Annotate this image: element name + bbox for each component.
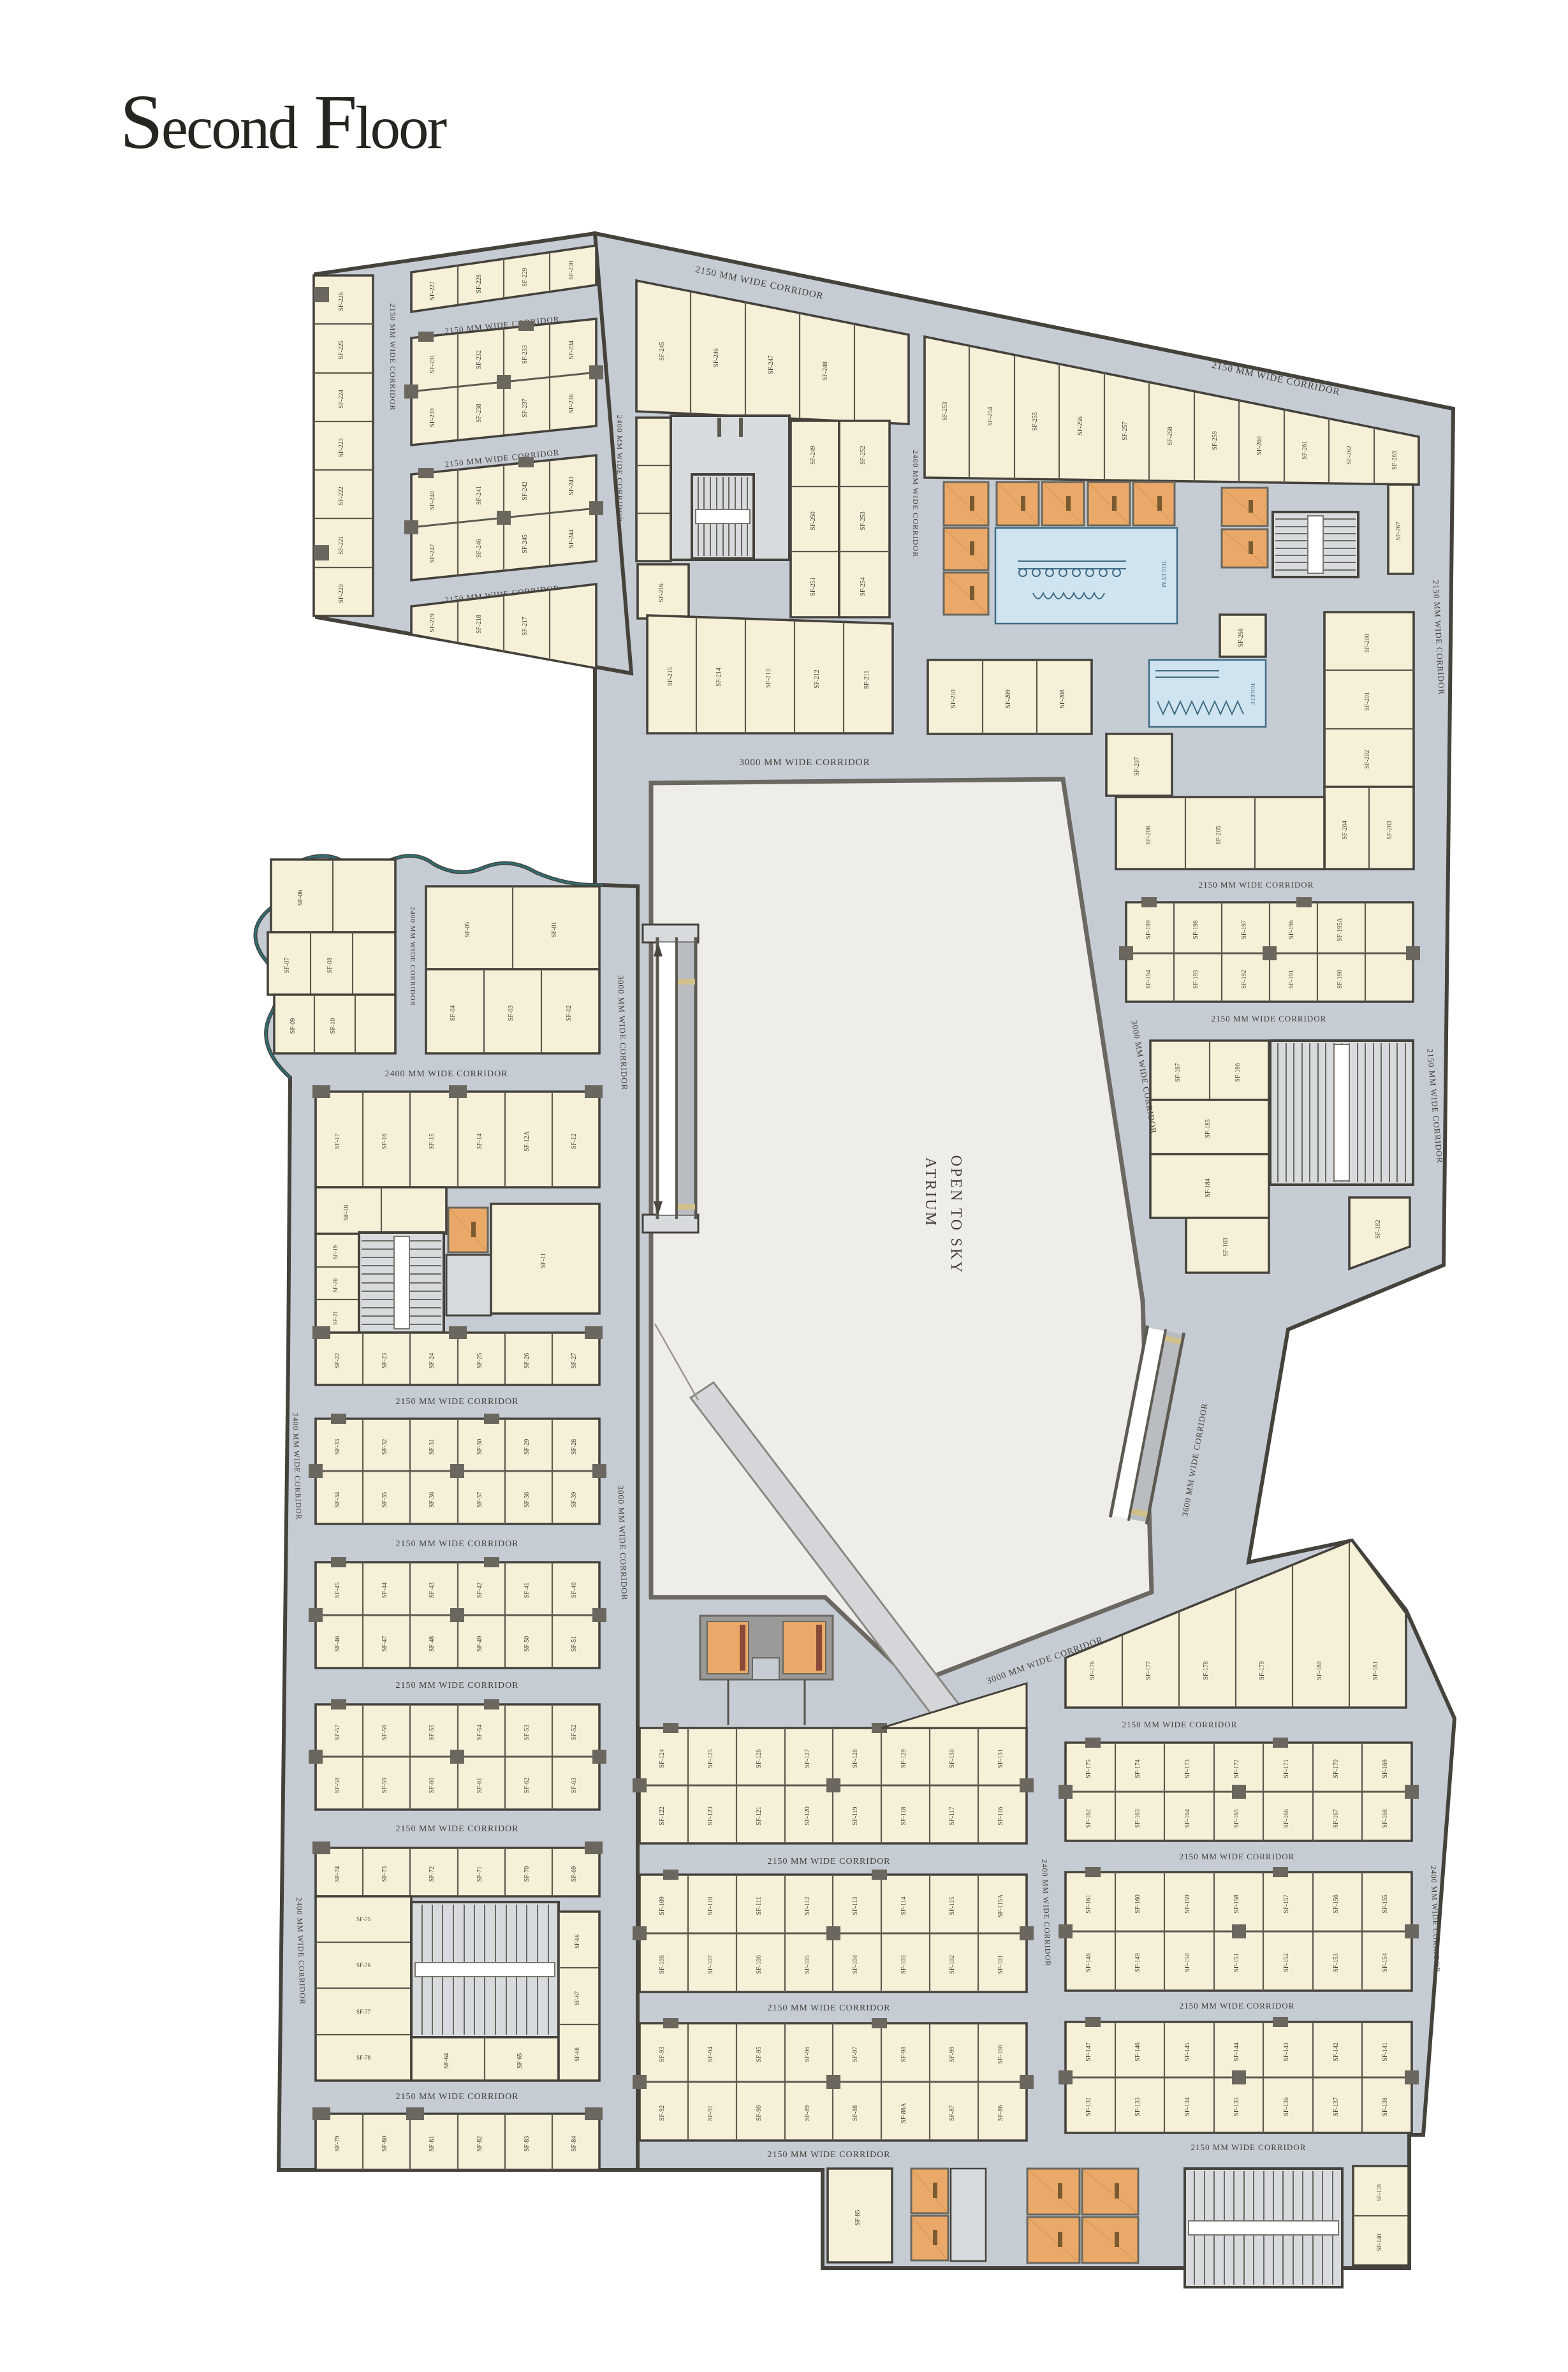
svg-text:SF-206: SF-206 <box>1145 826 1152 844</box>
svg-text:SF-192: SF-192 <box>1241 970 1248 988</box>
svg-text:SF-222: SF-222 <box>338 487 345 505</box>
svg-text:SF-101: SF-101 <box>997 1955 1004 1973</box>
svg-text:SF-55: SF-55 <box>429 1725 436 1740</box>
svg-text:SF-114: SF-114 <box>900 1896 907 1915</box>
svg-text:SF-70: SF-70 <box>524 1866 531 1882</box>
svg-text:SF-247: SF-247 <box>429 544 436 562</box>
svg-text:SF-169: SF-169 <box>1382 1759 1389 1778</box>
svg-text:SF-158: SF-158 <box>1233 1894 1240 1913</box>
svg-text:SF-168: SF-168 <box>1382 1809 1389 1827</box>
svg-text:SF-105: SF-105 <box>804 1955 811 1973</box>
svg-text:SF-140: SF-140 <box>1376 2234 1382 2251</box>
svg-text:SF-150: SF-150 <box>1184 1953 1191 1972</box>
svg-text:ATRIUM: ATRIUM <box>922 1157 939 1227</box>
svg-text:SF-245: SF-245 <box>659 342 666 360</box>
svg-text:SF-239: SF-239 <box>429 408 436 427</box>
svg-text:SF-35: SF-35 <box>381 1492 388 1507</box>
svg-text:SF-68: SF-68 <box>574 2047 580 2062</box>
svg-text:SF-211: SF-211 <box>863 670 870 689</box>
svg-text:SF-152: SF-152 <box>1283 1953 1290 1972</box>
svg-text:SF-03: SF-03 <box>508 1006 515 1021</box>
svg-text:SF-100: SF-100 <box>997 2045 1004 2063</box>
svg-text:TOILET F: TOILET F <box>1250 683 1256 705</box>
svg-text:2150 MM WIDE CORRIDOR: 2150 MM WIDE CORRIDOR <box>395 2092 518 2102</box>
svg-text:2150 MM WIDE CORRIDOR: 2150 MM WIDE CORRIDOR <box>767 2150 890 2160</box>
svg-text:SF-159: SF-159 <box>1184 1894 1191 1913</box>
svg-text:SF-204: SF-204 <box>1342 821 1349 839</box>
svg-text:SF-15: SF-15 <box>429 1134 436 1149</box>
svg-text:SF-146: SF-146 <box>1134 2042 1141 2061</box>
svg-text:SF-129: SF-129 <box>900 1749 907 1768</box>
svg-text:SF-181: SF-181 <box>1372 1661 1379 1680</box>
svg-text:SF-08: SF-08 <box>326 958 333 973</box>
svg-text:SF-193: SF-193 <box>1192 970 1199 988</box>
svg-text:SF-132: SF-132 <box>1085 2097 1092 2116</box>
svg-text:SF-87: SF-87 <box>949 2105 956 2121</box>
svg-text:SF-251: SF-251 <box>810 577 817 596</box>
svg-text:SF-115A: SF-115A <box>997 1894 1004 1917</box>
svg-text:SF-213: SF-213 <box>765 669 772 687</box>
svg-text:SF-197: SF-197 <box>1241 920 1248 939</box>
svg-text:SF-51: SF-51 <box>571 1636 578 1651</box>
svg-text:SF-246: SF-246 <box>713 348 720 367</box>
svg-text:SF-64: SF-64 <box>443 2053 450 2068</box>
svg-text:SF-40: SF-40 <box>571 1583 578 1598</box>
svg-text:SF-165: SF-165 <box>1233 1809 1240 1827</box>
svg-text:SF-137: SF-137 <box>1333 2097 1340 2116</box>
svg-text:SF-117: SF-117 <box>949 1806 956 1825</box>
svg-text:SF-124: SF-124 <box>659 1749 666 1768</box>
svg-text:SF-56: SF-56 <box>381 1725 388 1740</box>
svg-text:SF-58: SF-58 <box>334 1778 341 1793</box>
svg-text:SF-185: SF-185 <box>1205 1119 1212 1138</box>
svg-text:SF-219: SF-219 <box>429 613 436 632</box>
svg-text:SF-69: SF-69 <box>571 1866 578 1882</box>
svg-text:SF-125: SF-125 <box>707 1749 714 1768</box>
svg-text:SF-151: SF-151 <box>1233 1953 1240 1972</box>
svg-text:SF-212: SF-212 <box>814 670 821 688</box>
svg-text:2150 MM WIDE CORRIDOR: 2150 MM WIDE CORRIDOR <box>388 304 397 411</box>
svg-text:SF-231: SF-231 <box>429 355 436 373</box>
svg-text:2150 MM WIDE CORRIDOR: 2150 MM WIDE CORRIDOR <box>1199 880 1314 890</box>
svg-text:SF-135: SF-135 <box>1233 2097 1240 2116</box>
svg-text:SF-59: SF-59 <box>381 1778 388 1793</box>
svg-text:SF-33: SF-33 <box>334 1439 341 1454</box>
svg-text:SF-154: SF-154 <box>1382 1953 1389 1972</box>
svg-text:SF-172: SF-172 <box>1233 1759 1240 1778</box>
svg-text:SF-260: SF-260 <box>1256 436 1263 455</box>
svg-text:SF-217: SF-217 <box>522 617 529 635</box>
svg-text:SF-241: SF-241 <box>476 486 483 504</box>
svg-text:SF-05: SF-05 <box>464 922 471 937</box>
svg-text:SF-187: SF-187 <box>1175 1063 1182 1081</box>
svg-text:SF-27: SF-27 <box>571 1353 578 1368</box>
svg-text:2150 MM WIDE CORRIDOR: 2150 MM WIDE CORRIDOR <box>395 1681 518 1690</box>
svg-text:SF-214: SF-214 <box>715 668 722 686</box>
svg-text:SF-209: SF-209 <box>1005 689 1012 708</box>
svg-text:SF-84: SF-84 <box>571 2136 578 2151</box>
svg-text:SF-20: SF-20 <box>332 1278 339 1293</box>
svg-text:SF-122: SF-122 <box>659 1806 666 1825</box>
svg-text:SF-157: SF-157 <box>1283 1894 1290 1913</box>
svg-text:SF-31: SF-31 <box>429 1439 436 1454</box>
svg-text:SF-24: SF-24 <box>429 1353 436 1368</box>
svg-text:SF-138: SF-138 <box>1382 2097 1389 2116</box>
svg-text:SF-123: SF-123 <box>707 1806 714 1825</box>
svg-text:SF-261: SF-261 <box>1301 441 1308 459</box>
svg-text:SF-149: SF-149 <box>1134 1953 1141 1972</box>
svg-text:SF-88: SF-88 <box>852 2105 859 2121</box>
svg-text:SF-248: SF-248 <box>822 362 829 380</box>
svg-text:SF-268: SF-268 <box>1238 628 1245 647</box>
svg-text:SF-161: SF-161 <box>1085 1894 1092 1913</box>
svg-text:SF-167: SF-167 <box>1333 1809 1340 1827</box>
svg-text:SF-118: SF-118 <box>900 1806 907 1825</box>
svg-text:SF-253: SF-253 <box>860 511 867 530</box>
svg-text:SF-240: SF-240 <box>429 491 436 509</box>
svg-text:2150 MM WIDE CORRIDOR: 2150 MM WIDE CORRIDOR <box>1191 2142 1307 2152</box>
svg-text:SF-229: SF-229 <box>522 268 529 286</box>
svg-text:2150 MM WIDE CORRIDOR: 2150 MM WIDE CORRIDOR <box>395 1539 518 1549</box>
svg-text:SF-127: SF-127 <box>804 1749 811 1768</box>
svg-text:SF-218: SF-218 <box>476 615 483 633</box>
svg-text:SF-226: SF-226 <box>338 292 345 311</box>
svg-text:SF-112: SF-112 <box>804 1896 811 1915</box>
svg-text:SF-258: SF-258 <box>1167 427 1174 445</box>
svg-text:SF-36: SF-36 <box>429 1492 436 1507</box>
svg-text:SF-164: SF-164 <box>1184 1809 1191 1827</box>
svg-text:SF-131: SF-131 <box>997 1749 1004 1768</box>
svg-text:SF-166: SF-166 <box>1283 1809 1290 1827</box>
svg-text:SF-215: SF-215 <box>667 667 674 685</box>
svg-text:SF-196: SF-196 <box>1288 920 1295 939</box>
svg-text:SF-104: SF-104 <box>852 1955 859 1973</box>
svg-text:SF-230: SF-230 <box>568 261 575 279</box>
svg-text:2150 MM WIDE CORRIDOR: 2150 MM WIDE CORRIDOR <box>1122 1720 1238 1729</box>
svg-text:SF-263: SF-263 <box>1391 451 1398 469</box>
svg-text:TOILET M: TOILET M <box>1161 560 1167 587</box>
svg-text:SF-141: SF-141 <box>1382 2042 1389 2061</box>
svg-text:SF-48: SF-48 <box>429 1636 436 1651</box>
svg-text:SF-06: SF-06 <box>297 890 304 905</box>
svg-text:SF-175: SF-175 <box>1085 1759 1092 1778</box>
svg-text:SF-202: SF-202 <box>1364 750 1371 768</box>
svg-text:SF-147: SF-147 <box>1085 2042 1092 2061</box>
svg-text:SF-145: SF-145 <box>1184 2042 1191 2061</box>
svg-text:2150 MM WIDE CORRIDOR: 2150 MM WIDE CORRIDOR <box>395 1397 518 1407</box>
svg-text:SF-234: SF-234 <box>568 340 575 359</box>
svg-text:SF-199: SF-199 <box>1145 920 1152 939</box>
svg-text:SF-174: SF-174 <box>1134 1759 1141 1778</box>
svg-text:SF-57: SF-57 <box>334 1725 341 1740</box>
svg-text:SF-243: SF-243 <box>568 476 575 495</box>
svg-text:SF-171: SF-171 <box>1283 1759 1290 1778</box>
svg-text:SF-134: SF-134 <box>1184 2097 1191 2116</box>
svg-text:SF-79: SF-79 <box>334 2136 341 2151</box>
svg-text:SF-37: SF-37 <box>476 1492 483 1507</box>
svg-text:SF-49: SF-49 <box>476 1636 483 1651</box>
svg-text:SF-178: SF-178 <box>1203 1661 1210 1680</box>
svg-text:SF-247: SF-247 <box>768 355 775 374</box>
svg-text:SF-162: SF-162 <box>1085 1809 1092 1827</box>
svg-text:SF-65: SF-65 <box>517 2053 524 2068</box>
svg-text:SF-63: SF-63 <box>571 1778 578 1793</box>
svg-text:SF-02: SF-02 <box>566 1006 573 1021</box>
svg-text:SF-83: SF-83 <box>524 2136 531 2151</box>
svg-text:3000 MM WIDE CORRIDOR: 3000 MM WIDE CORRIDOR <box>739 758 870 768</box>
svg-text:SF-86: SF-86 <box>997 2105 1004 2121</box>
svg-text:SF-39: SF-39 <box>571 1492 578 1507</box>
svg-text:SF-262: SF-262 <box>1346 446 1353 464</box>
svg-text:SF-232: SF-232 <box>476 350 483 369</box>
svg-text:SF-254: SF-254 <box>860 577 867 596</box>
svg-text:SF-246: SF-246 <box>476 539 483 557</box>
svg-text:SF-173: SF-173 <box>1184 1759 1191 1778</box>
svg-text:SF-88A: SF-88A <box>900 2102 907 2123</box>
svg-text:SF-201: SF-201 <box>1364 692 1371 710</box>
svg-text:SF-242: SF-242 <box>522 481 529 500</box>
svg-text:SF-252: SF-252 <box>860 446 867 464</box>
svg-text:SF-221: SF-221 <box>338 536 345 554</box>
svg-text:SF-29: SF-29 <box>524 1439 531 1454</box>
svg-text:SF-228: SF-228 <box>476 274 483 293</box>
svg-text:SF-233: SF-233 <box>522 345 529 363</box>
svg-text:SF-186: SF-186 <box>1235 1063 1242 1081</box>
svg-text:SF-253: SF-253 <box>942 402 949 420</box>
svg-text:SF-42: SF-42 <box>476 1583 483 1598</box>
svg-text:SF-267: SF-267 <box>1395 522 1402 540</box>
svg-text:SF-115: SF-115 <box>949 1896 956 1915</box>
svg-text:SF-67: SF-67 <box>574 1991 580 2006</box>
svg-text:SF-143: SF-143 <box>1283 2042 1290 2061</box>
svg-text:SF-53: SF-53 <box>524 1725 531 1740</box>
svg-text:SF-121: SF-121 <box>756 1806 763 1825</box>
svg-text:SF-130: SF-130 <box>949 1749 956 1768</box>
svg-text:SF-128: SF-128 <box>852 1749 859 1768</box>
svg-text:2150 MM WIDE CORRIDOR: 2150 MM WIDE CORRIDOR <box>1180 2001 1295 2010</box>
svg-text:SF-10: SF-10 <box>330 1018 337 1034</box>
svg-text:SF-26: SF-26 <box>524 1353 531 1368</box>
svg-text:SF-237: SF-237 <box>522 399 529 417</box>
svg-text:SF-01: SF-01 <box>551 922 558 937</box>
svg-text:SF-180: SF-180 <box>1316 1661 1323 1680</box>
svg-text:SF-227: SF-227 <box>429 281 436 300</box>
svg-text:SF-45: SF-45 <box>334 1583 341 1598</box>
svg-text:SF-110: SF-110 <box>707 1896 714 1915</box>
svg-text:OPEN TO SKY: OPEN TO SKY <box>948 1155 964 1275</box>
svg-text:SF-223: SF-223 <box>338 438 345 457</box>
svg-text:SF-190: SF-190 <box>1337 970 1344 988</box>
svg-text:SF-245: SF-245 <box>522 534 529 553</box>
svg-text:SF-16: SF-16 <box>381 1134 388 1149</box>
svg-text:SF-82: SF-82 <box>476 2136 483 2151</box>
svg-text:SF-108: SF-108 <box>659 1955 666 1973</box>
svg-text:SF-18: SF-18 <box>343 1205 350 1220</box>
svg-text:SF-191: SF-191 <box>1288 970 1295 988</box>
svg-text:SF-90: SF-90 <box>756 2105 763 2121</box>
svg-text:SF-12: SF-12 <box>571 1134 578 1149</box>
svg-text:SF-216: SF-216 <box>658 583 665 602</box>
svg-text:SF-256: SF-256 <box>1077 416 1084 435</box>
svg-text:2400 MM WIDE CORRIDOR: 2400 MM WIDE CORRIDOR <box>385 1069 508 1079</box>
svg-text:SF-113: SF-113 <box>852 1896 859 1915</box>
svg-text:SF-133: SF-133 <box>1134 2097 1141 2116</box>
svg-text:SF-38: SF-38 <box>524 1492 531 1507</box>
svg-text:SF-249: SF-249 <box>810 446 817 464</box>
svg-text:SF-220: SF-220 <box>338 584 345 603</box>
svg-text:SF-195A: SF-195A <box>1337 918 1344 941</box>
svg-text:2400 MM WIDE CORRIDOR: 2400 MM WIDE CORRIDOR <box>615 415 624 522</box>
svg-text:SF-176: SF-176 <box>1089 1661 1096 1680</box>
svg-text:2150 MM WIDE CORRIDOR: 2150 MM WIDE CORRIDOR <box>1180 1852 1295 1861</box>
svg-text:SF-43: SF-43 <box>429 1583 436 1598</box>
svg-text:SF-34: SF-34 <box>334 1492 341 1507</box>
svg-text:SF-60: SF-60 <box>429 1778 436 1793</box>
svg-text:SF-250: SF-250 <box>810 511 817 530</box>
svg-text:SF-25: SF-25 <box>476 1353 483 1368</box>
svg-text:SF-120: SF-120 <box>804 1806 811 1825</box>
svg-text:SF-236: SF-236 <box>568 394 575 413</box>
svg-text:SF-210: SF-210 <box>950 689 957 708</box>
svg-text:SF-73: SF-73 <box>381 1866 388 1882</box>
svg-text:SF-103: SF-103 <box>900 1955 907 1973</box>
svg-text:SF-47: SF-47 <box>381 1636 388 1651</box>
svg-text:SF-54: SF-54 <box>476 1725 483 1740</box>
svg-text:SF-200: SF-200 <box>1364 634 1371 652</box>
svg-text:SF-153: SF-153 <box>1333 1953 1340 1972</box>
svg-text:SF-52: SF-52 <box>571 1725 578 1740</box>
svg-text:SF-23: SF-23 <box>381 1353 388 1368</box>
svg-text:SF-156: SF-156 <box>1333 1894 1340 1913</box>
svg-text:SF-21: SF-21 <box>332 1311 339 1325</box>
svg-text:SF-78: SF-78 <box>356 2054 371 2061</box>
svg-text:SF-19: SF-19 <box>332 1245 339 1260</box>
svg-text:SF-225: SF-225 <box>338 340 345 359</box>
svg-text:SF-116: SF-116 <box>997 1806 1004 1825</box>
svg-text:SF-111: SF-111 <box>756 1897 763 1915</box>
svg-text:SF-11: SF-11 <box>540 1253 547 1268</box>
svg-text:SF-32: SF-32 <box>381 1439 388 1454</box>
svg-text:SF-80: SF-80 <box>381 2136 388 2151</box>
svg-text:SF-148: SF-148 <box>1085 1953 1092 1972</box>
svg-text:SF-72: SF-72 <box>429 1866 436 1882</box>
svg-text:SF-74: SF-74 <box>334 1866 341 1882</box>
svg-text:SF-160: SF-160 <box>1134 1894 1141 1913</box>
svg-text:SF-97: SF-97 <box>852 2047 859 2062</box>
svg-text:SF-257: SF-257 <box>1122 421 1129 440</box>
svg-text:SF-207: SF-207 <box>1134 757 1141 775</box>
svg-text:SF-92: SF-92 <box>659 2105 666 2121</box>
svg-text:SF-259: SF-259 <box>1212 431 1219 450</box>
svg-text:SF-106: SF-106 <box>756 1955 763 1973</box>
svg-text:SF-93: SF-93 <box>659 2047 666 2062</box>
svg-text:SF-183: SF-183 <box>1222 1238 1229 1256</box>
svg-text:2150 MM WIDE CORRIDOR: 2150 MM WIDE CORRIDOR <box>1212 1014 1327 1023</box>
svg-text:SF-04: SF-04 <box>450 1006 457 1021</box>
svg-text:SF-61: SF-61 <box>476 1778 483 1793</box>
svg-text:SF-102: SF-102 <box>949 1955 956 1973</box>
svg-text:SF-89: SF-89 <box>804 2105 811 2121</box>
svg-text:SF-81: SF-81 <box>429 2136 436 2151</box>
svg-text:SF-44: SF-44 <box>381 1583 388 1598</box>
svg-text:SF-12A: SF-12A <box>524 1131 531 1151</box>
svg-text:SF-255: SF-255 <box>1032 412 1039 430</box>
svg-text:SF-163: SF-163 <box>1134 1809 1141 1827</box>
svg-text:SF-28: SF-28 <box>571 1439 578 1454</box>
svg-text:SF-244: SF-244 <box>568 529 575 548</box>
svg-text:SF-177: SF-177 <box>1145 1661 1152 1680</box>
svg-text:SF-155: SF-155 <box>1382 1894 1389 1913</box>
svg-text:SF-71: SF-71 <box>476 1866 483 1882</box>
svg-text:SF-238: SF-238 <box>476 404 483 422</box>
svg-text:SF-46: SF-46 <box>334 1636 341 1651</box>
svg-text:SF-30: SF-30 <box>476 1439 483 1454</box>
svg-text:SF-203: SF-203 <box>1386 821 1393 839</box>
svg-text:2400 MM WIDE CORRIDOR: 2400 MM WIDE CORRIDOR <box>409 907 416 1006</box>
svg-text:SF-107: SF-107 <box>707 1955 714 1973</box>
svg-text:2150 MM WIDE CORRIDOR: 2150 MM WIDE CORRIDOR <box>767 2003 890 2013</box>
svg-text:SF-198: SF-198 <box>1192 920 1199 939</box>
svg-text:SF-208: SF-208 <box>1059 689 1066 708</box>
svg-text:SF-126: SF-126 <box>756 1749 763 1768</box>
svg-text:SF-76: SF-76 <box>356 1962 371 1968</box>
svg-text:SF-50: SF-50 <box>524 1636 531 1651</box>
svg-text:SF-94: SF-94 <box>707 2047 714 2062</box>
svg-text:SF-85: SF-85 <box>854 2210 861 2225</box>
svg-text:SF-77: SF-77 <box>356 2009 371 2015</box>
svg-text:SF-14: SF-14 <box>476 1134 483 1149</box>
svg-text:SF-41: SF-41 <box>524 1583 531 1598</box>
svg-text:SF-144: SF-144 <box>1233 2042 1240 2061</box>
svg-text:SF-62: SF-62 <box>524 1778 531 1793</box>
svg-text:SF-07: SF-07 <box>284 958 291 973</box>
svg-text:SF-194: SF-194 <box>1145 970 1152 988</box>
svg-text:SF-17: SF-17 <box>334 1134 341 1149</box>
svg-text:SF-205: SF-205 <box>1215 826 1222 844</box>
svg-text:SF-254: SF-254 <box>987 407 994 425</box>
svg-text:SF-91: SF-91 <box>707 2105 714 2121</box>
svg-text:SF-179: SF-179 <box>1259 1661 1266 1680</box>
svg-text:SF-182: SF-182 <box>1375 1220 1382 1238</box>
svg-text:SF-66: SF-66 <box>574 1935 580 1949</box>
svg-text:SF-98: SF-98 <box>900 2047 907 2062</box>
svg-text:2150 MM WIDE CORRIDOR: 2150 MM WIDE CORRIDOR <box>767 1857 890 1866</box>
svg-text:2150 MM WIDE CORRIDOR: 2150 MM WIDE CORRIDOR <box>395 1824 518 1834</box>
svg-text:SF-22: SF-22 <box>334 1353 341 1368</box>
svg-text:SF-109: SF-109 <box>659 1896 666 1915</box>
svg-text:2400 MM WIDE CORRIDOR: 2400 MM WIDE CORRIDOR <box>911 450 920 557</box>
svg-text:SF-224: SF-224 <box>338 390 345 408</box>
svg-text:SF-99: SF-99 <box>949 2047 956 2062</box>
svg-text:SF-139: SF-139 <box>1376 2184 1382 2201</box>
svg-text:SF-184: SF-184 <box>1205 1178 1212 1197</box>
svg-text:SF-09: SF-09 <box>289 1018 297 1034</box>
svg-text:SF-75: SF-75 <box>356 1916 371 1922</box>
svg-text:SF-96: SF-96 <box>804 2047 811 2062</box>
svg-text:SF-170: SF-170 <box>1333 1759 1340 1778</box>
svg-text:SF-95: SF-95 <box>756 2047 763 2062</box>
svg-text:SF-119: SF-119 <box>852 1806 859 1825</box>
svg-text:SF-136: SF-136 <box>1283 2097 1290 2116</box>
svg-text:SF-142: SF-142 <box>1333 2042 1340 2061</box>
